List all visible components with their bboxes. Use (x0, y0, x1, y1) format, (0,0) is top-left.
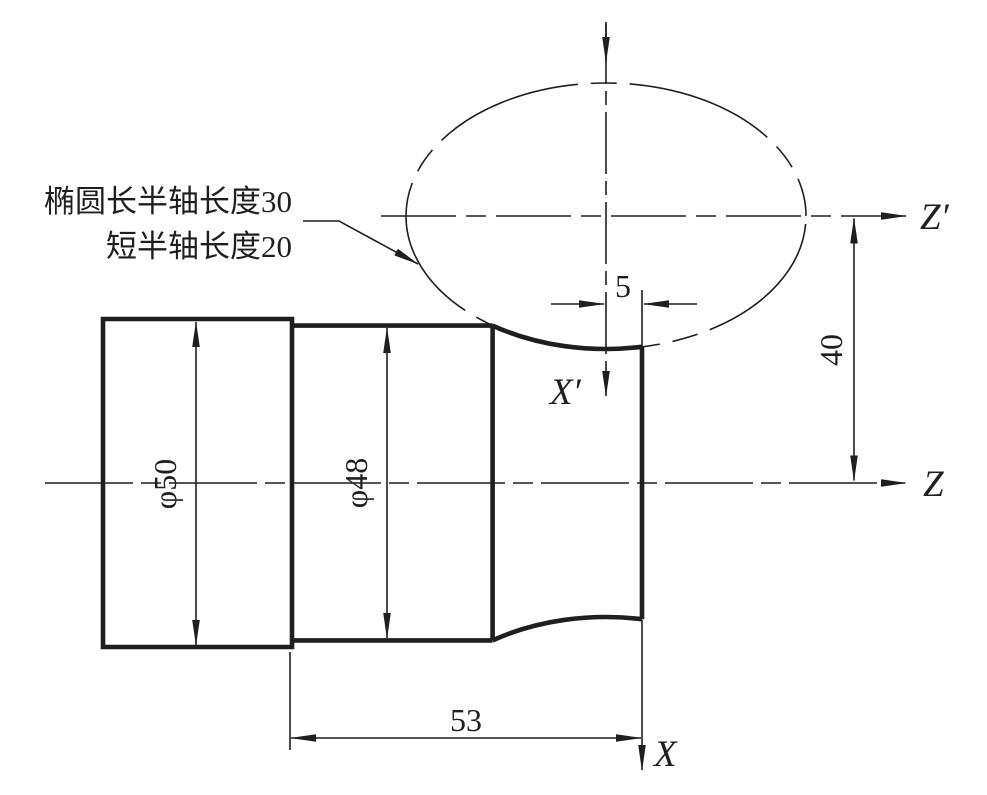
annotation-line-2: 短半轴长度20 (106, 229, 292, 264)
dim-label-5: 5 (615, 268, 631, 304)
dim-label-40: 40 (813, 334, 849, 366)
axis-label-z: Z (923, 464, 944, 505)
axis-label-z-prime: Z′ (920, 197, 950, 238)
part-top-elliptical-surface (493, 326, 642, 349)
dim-label-diameter-50: φ50 (147, 459, 183, 509)
engineering-drawing-page: 椭圆长半轴长度30 短半轴长度20 φ50 φ48 40 5 53 Z′ Z X… (0, 0, 987, 795)
annotation-line-1: 椭圆长半轴长度30 (44, 184, 292, 219)
dim-label-diameter-48: φ48 (338, 458, 374, 508)
axis-label-x-prime: X′ (548, 372, 582, 413)
annotation-leader-line (303, 221, 418, 264)
part-bottom-elliptical-surface (493, 617, 642, 640)
dim-label-53: 53 (450, 702, 482, 738)
lathe-part-drawing: 椭圆长半轴长度30 短半轴长度20 φ50 φ48 40 5 53 Z′ Z X… (0, 0, 987, 795)
axis-label-x: X (652, 734, 678, 775)
